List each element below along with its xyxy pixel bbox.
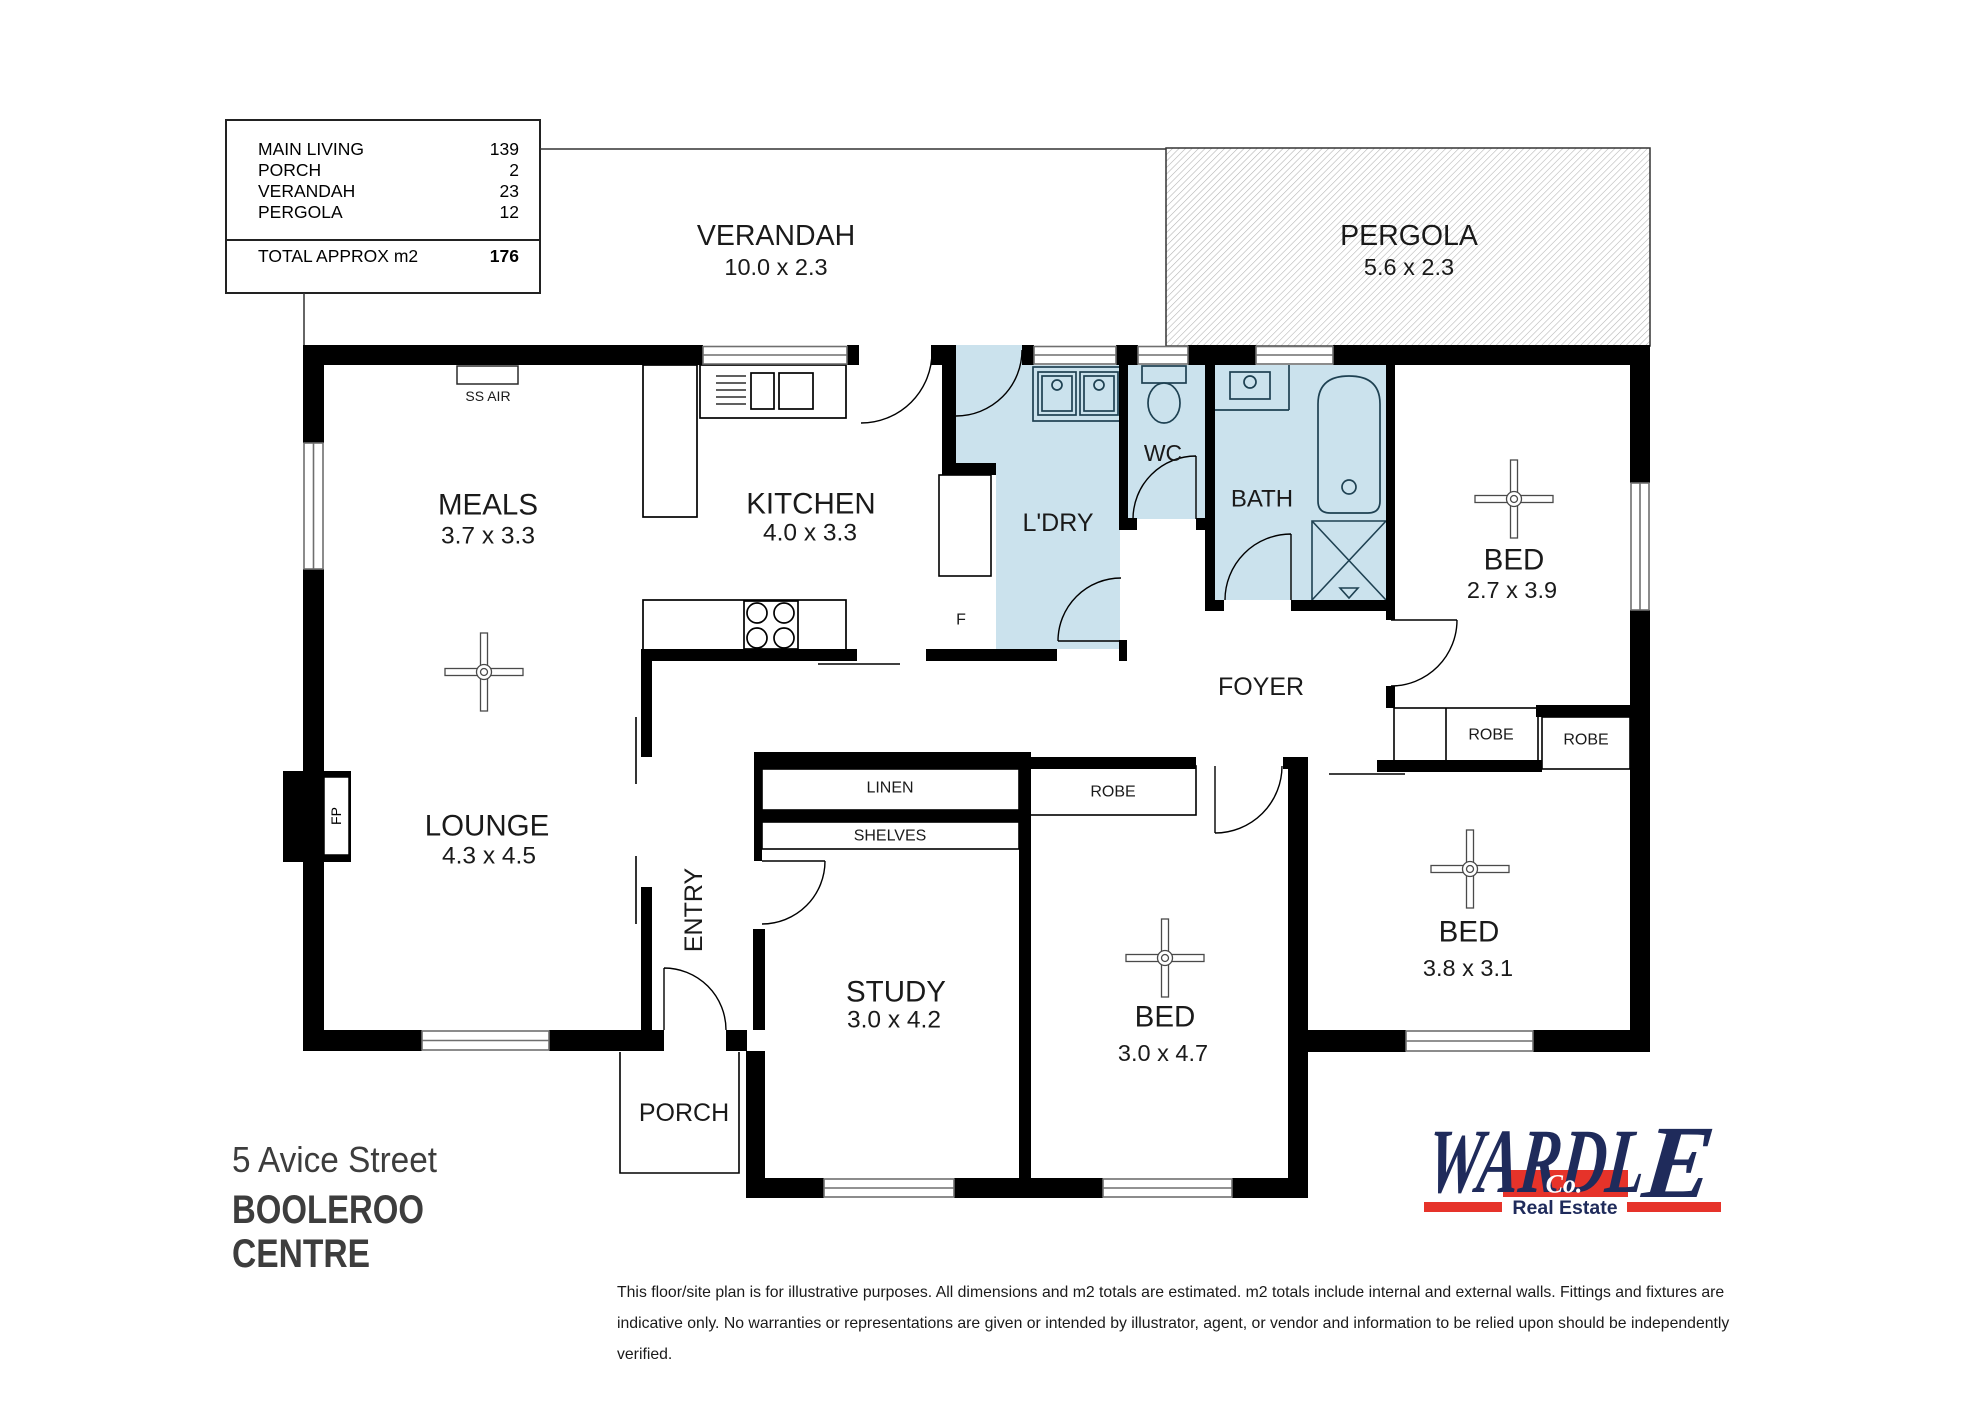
svg-text:5 Avice Street: 5 Avice Street <box>232 1139 437 1180</box>
svg-text:PORCH: PORCH <box>639 1099 729 1127</box>
svg-text:PORCH: PORCH <box>258 160 321 180</box>
svg-text:WC: WC <box>1144 440 1182 466</box>
svg-text:FOYER: FOYER <box>1218 673 1304 701</box>
svg-text:BOOLEROO: BOOLEROO <box>232 1188 424 1232</box>
svg-text:ROBE: ROBE <box>1563 732 1608 749</box>
svg-text:5.6 x 2.3: 5.6 x 2.3 <box>1364 254 1454 280</box>
svg-text:2.7 x 3.9: 2.7 x 3.9 <box>1467 577 1557 603</box>
svg-text:BED: BED <box>1484 544 1545 577</box>
svg-text:PERGOLA: PERGOLA <box>258 202 343 222</box>
svg-text:176: 176 <box>490 246 519 266</box>
svg-text:verified.: verified. <box>617 1346 672 1363</box>
svg-text:FP: FP <box>328 807 344 825</box>
svg-text:F: F <box>956 612 966 629</box>
svg-text:3.7 x 3.3: 3.7 x 3.3 <box>441 523 535 550</box>
svg-text:VERANDAH: VERANDAH <box>258 181 355 201</box>
svg-text:TOTAL APPROX m2: TOTAL APPROX m2 <box>258 246 418 266</box>
svg-text:12: 12 <box>500 202 519 222</box>
svg-text:MAIN LIVING: MAIN LIVING <box>258 139 364 159</box>
svg-text:3.8 x 3.1: 3.8 x 3.1 <box>1423 955 1513 981</box>
svg-text:ENTRY: ENTRY <box>680 868 708 953</box>
svg-text:L'DRY: L'DRY <box>1022 509 1093 537</box>
svg-text:BED: BED <box>1439 916 1500 949</box>
svg-text:PERGOLA: PERGOLA <box>1340 220 1478 252</box>
svg-text:3.0 x 4.7: 3.0 x 4.7 <box>1118 1040 1208 1066</box>
svg-text:3.0 x 4.2: 3.0 x 4.2 <box>847 1007 941 1034</box>
svg-text:ROBE: ROBE <box>1090 784 1135 801</box>
svg-text:MEALS: MEALS <box>438 489 538 522</box>
svg-text:4.0 x 3.3: 4.0 x 3.3 <box>763 520 857 547</box>
svg-text:4.3 x 4.5: 4.3 x 4.5 <box>442 843 536 870</box>
svg-text:SHELVES: SHELVES <box>854 828 927 845</box>
svg-text:10.0 x 2.3: 10.0 x 2.3 <box>724 254 827 280</box>
svg-text:STUDY: STUDY <box>846 976 946 1009</box>
svg-text:23: 23 <box>500 181 519 201</box>
svg-text:Real Estate: Real Estate <box>1512 1197 1617 1219</box>
svg-text:indicative only. No warranties: indicative only. No warranties or repres… <box>617 1315 1729 1332</box>
svg-text:ROBE: ROBE <box>1468 727 1513 744</box>
svg-text:LOUNGE: LOUNGE <box>425 810 550 843</box>
svg-text:BATH: BATH <box>1231 486 1293 513</box>
svg-text:VERANDAH: VERANDAH <box>697 220 855 252</box>
svg-text:2: 2 <box>509 160 519 180</box>
svg-text:CENTRE: CENTRE <box>232 1232 370 1276</box>
svg-text:139: 139 <box>490 139 519 159</box>
svg-text:BED: BED <box>1135 1001 1196 1034</box>
svg-text:This floor/site plan is for il: This floor/site plan is for illustrative… <box>617 1284 1724 1301</box>
svg-text:SS AIR: SS AIR <box>465 388 510 404</box>
svg-text:Co.: Co. <box>1546 1170 1583 1199</box>
svg-text:KITCHEN: KITCHEN <box>746 488 875 521</box>
svg-text:LINEN: LINEN <box>866 780 913 797</box>
